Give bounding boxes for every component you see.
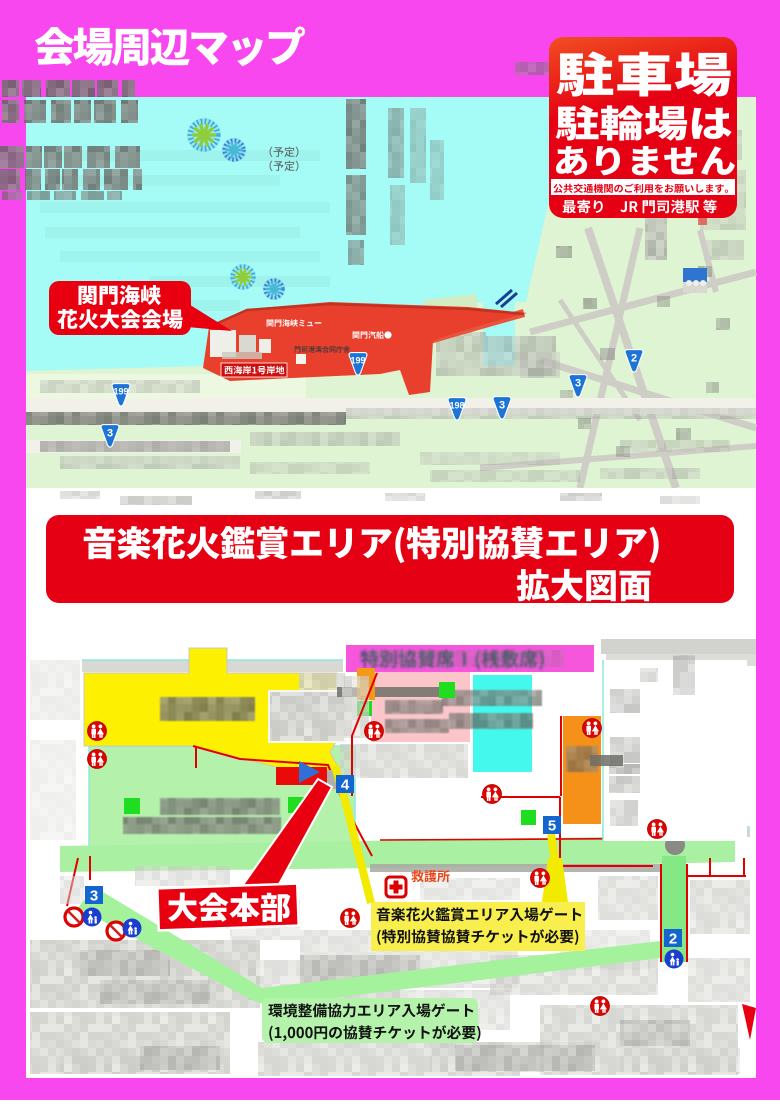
svg-text:4: 4 [341,777,350,794]
svg-text:3: 3 [499,400,505,412]
svg-text:199: 199 [113,387,128,397]
svg-text:199: 199 [350,356,365,366]
svg-text:2: 2 [669,931,677,948]
svg-text:3: 3 [107,428,113,440]
svg-text:5: 5 [548,818,556,835]
svg-text:198: 198 [449,401,464,411]
svg-text:2: 2 [631,353,637,365]
svg-text:3: 3 [90,888,98,905]
svg-text:3: 3 [575,378,581,390]
